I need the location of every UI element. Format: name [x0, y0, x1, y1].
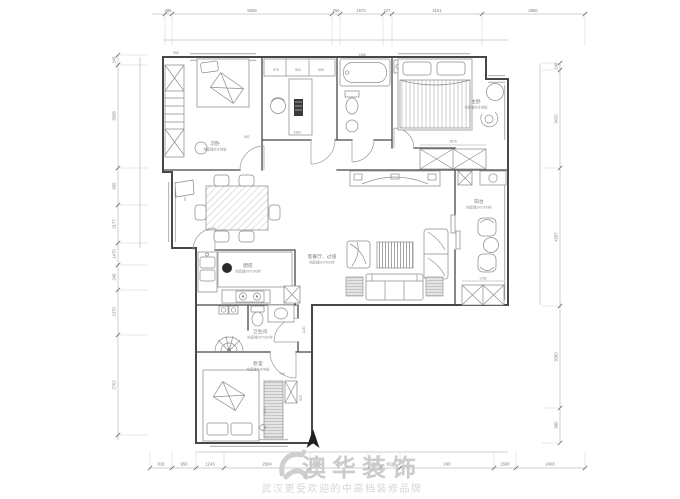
- dim-left-6: 1370: [112, 307, 117, 317]
- lounge-chair-1: [478, 218, 496, 236]
- brand-slogan: 武汉更受欢迎的中高档装修品牌: [262, 482, 423, 495]
- dim-left-1: 3308: [112, 111, 117, 121]
- washer: [219, 306, 238, 314]
- dim-top-0: 285: [165, 8, 173, 13]
- armchair: [347, 241, 370, 268]
- side-table-right: [426, 277, 443, 296]
- label-balcony: 阳台: [474, 198, 484, 205]
- leisure-chair: [481, 112, 498, 127]
- lounge-chair-2: [478, 254, 496, 272]
- chaise-sofa: [424, 229, 448, 279]
- dim-top-6: 2850: [528, 8, 538, 13]
- door-study: [311, 140, 335, 164]
- note-bath2: 地面铺300*300砖: [247, 335, 273, 340]
- dim-right-2: 4297: [554, 232, 559, 242]
- bathtub: [340, 59, 390, 86]
- bed-secondary: [197, 59, 249, 107]
- dim-top-4: 227: [384, 8, 392, 13]
- balcony-table: [484, 238, 499, 253]
- dim-left-0: 245: [112, 56, 117, 64]
- dim-top-1: 5508: [247, 8, 257, 13]
- note-balcony: 地面铺300*300砖: [466, 205, 492, 210]
- coffee-table: [377, 242, 413, 268]
- dim-inner-925: 925: [299, 395, 303, 401]
- dim-inner-878: 878: [273, 68, 279, 72]
- dim-bottom-1: 950: [181, 462, 189, 467]
- bed-lower: [203, 370, 259, 441]
- brand-name: 澳华装饰: [302, 454, 422, 482]
- dim-inner-2364: 2364: [293, 131, 301, 135]
- dim-inner-1963: 1963: [263, 407, 267, 415]
- floorplan-drawing: 285 5508 250 1572 227 2181 2850 818 950 …: [0, 0, 680, 499]
- dim-inner-852: 852: [244, 135, 250, 139]
- study-desk: [289, 79, 312, 135]
- dim-right-4: 990: [554, 421, 559, 429]
- study-chair: [271, 98, 286, 114]
- leisure-table: [487, 84, 504, 101]
- dim-top-2: 250: [333, 8, 341, 13]
- dim-top-3: 1572: [356, 8, 366, 13]
- dim-inner-1140: 1140: [302, 326, 306, 333]
- dim-bottom-3: 2904: [262, 462, 272, 467]
- note-living: 地面铺800*800砖: [309, 260, 335, 265]
- vanity-bath2: [268, 305, 294, 322]
- dim-left-2: 805: [112, 182, 117, 190]
- dim-left-5: 249: [112, 273, 117, 281]
- fridge: [284, 286, 300, 303]
- balcony-cabinet-bottom: [462, 281, 504, 305]
- dim-bottom-2: 1243: [205, 462, 215, 467]
- note-master: 地面铺实木地板: [464, 105, 488, 110]
- kitchen-pot: [222, 263, 232, 273]
- floorplan-page: 285 5508 250 1572 227 2181 2850 818 950 …: [0, 0, 680, 499]
- balcony-cabinet-top: [458, 171, 472, 185]
- note-kitchen: 地面铺300*300砖: [235, 269, 261, 274]
- dim-left-7: 2762: [112, 380, 117, 390]
- note-bedroom2: 地面铺实木地板: [246, 367, 270, 372]
- toilet-bath1: [345, 91, 359, 114]
- dim-bottom-9: 2408: [545, 462, 555, 467]
- sofa: [366, 274, 423, 300]
- dim-inner-1368: 1368: [358, 53, 366, 57]
- dim-inner-1782: 1782: [479, 277, 487, 281]
- dim-inner-555: 555: [173, 51, 179, 55]
- door-master: [394, 128, 414, 148]
- tv-cabinet: [350, 171, 440, 186]
- dim-right-1: 3420: [554, 114, 559, 124]
- dim-inner-706: 706: [279, 372, 285, 376]
- door-bath1: [352, 140, 374, 162]
- dim-inner-550: 550: [295, 68, 301, 72]
- dim-right-0: 240: [554, 62, 559, 70]
- note-bedroom1: 地面铺实木地板: [203, 147, 227, 152]
- kitchen-sink: [198, 252, 217, 292]
- bed-master: [398, 59, 472, 130]
- label-master: 主卧: [471, 98, 481, 105]
- kitchen-stove: [222, 290, 270, 303]
- label-living: 客餐厅、过道: [308, 253, 337, 260]
- label-bedroom2: 卧室: [253, 360, 263, 367]
- north-arrow-icon: [307, 429, 320, 448]
- dim-inner-655: 655: [318, 68, 324, 72]
- door-bed1: [240, 146, 264, 170]
- shower-spray: [215, 336, 243, 352]
- label-bath2: 卫生间: [253, 328, 268, 335]
- dim-left-4: 1470: [112, 249, 117, 259]
- dining-table: [206, 186, 268, 230]
- dim-bottom-8: 1590: [500, 462, 510, 467]
- door-kitchen: [193, 228, 215, 250]
- watermark: 澳华装饰 武汉更受欢迎的中高档装修品牌: [262, 450, 423, 496]
- toilet-bath2: [251, 306, 264, 326]
- dim-bottom-7: 240: [444, 462, 452, 467]
- dim-left-3: 2177: [112, 219, 117, 229]
- label-kitchen: 厨房: [243, 262, 253, 269]
- desk-monitor: [294, 99, 303, 116]
- wardrobe-bed1: [165, 65, 184, 157]
- wall-tv: [175, 180, 194, 201]
- dim-bottom-0: 818: [158, 462, 166, 467]
- dim-top-5: 2181: [432, 8, 442, 13]
- side-table-left: [346, 277, 363, 296]
- sink-bath1: [346, 120, 358, 132]
- label-bedroom1: 次卧: [210, 140, 220, 147]
- dim-inner-1876: 1876: [449, 140, 457, 144]
- dim-right-3: 3280: [554, 352, 559, 362]
- sliding-door-balcony: [451, 215, 460, 249]
- wardrobe-bed2: [264, 381, 297, 438]
- balcony-basin: [480, 171, 506, 185]
